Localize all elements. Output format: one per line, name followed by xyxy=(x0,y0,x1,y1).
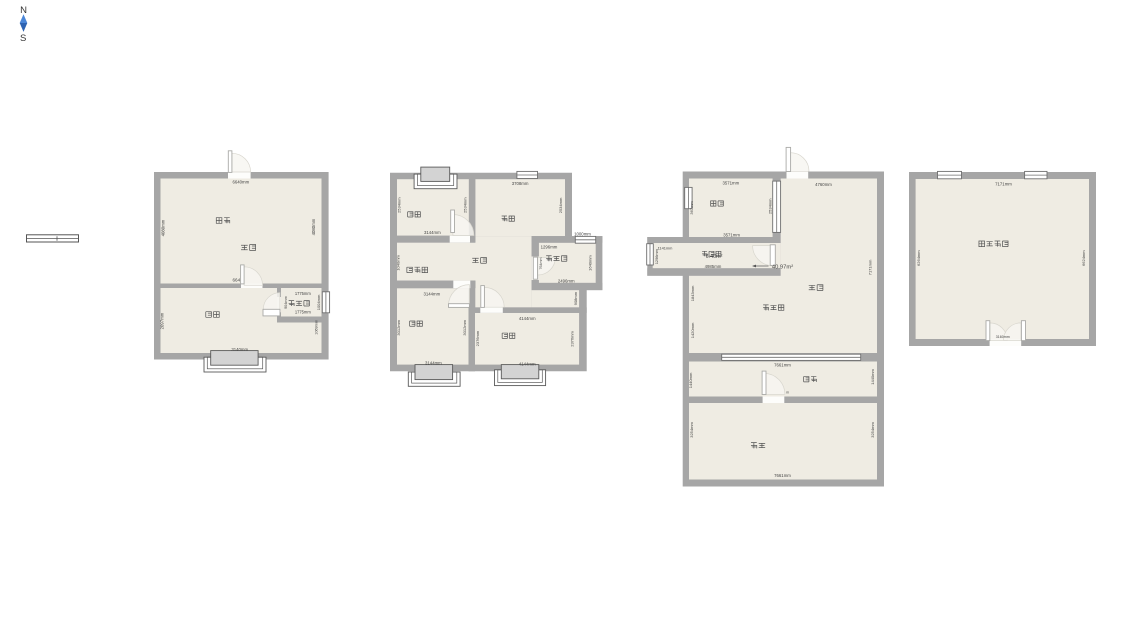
svg-text:3254mm: 3254mm xyxy=(689,422,694,438)
svg-text:2496mm: 2496mm xyxy=(558,278,575,283)
svg-text:1843mm: 1843mm xyxy=(690,285,695,301)
svg-text:3160mm: 3160mm xyxy=(996,335,1010,339)
svg-text:908mm: 908mm xyxy=(573,291,578,305)
svg-text:904mm: 904mm xyxy=(284,296,288,309)
svg-text:1296mm: 1296mm xyxy=(654,249,659,264)
svg-text:7171mm: 7171mm xyxy=(868,259,873,275)
svg-text:2376mm: 2376mm xyxy=(570,331,575,347)
svg-text:3254mm: 3254mm xyxy=(870,422,875,438)
svg-text:4760mm: 4760mm xyxy=(815,182,832,187)
svg-text:367mm: 367mm xyxy=(689,201,694,215)
svg-text:2534mm: 2534mm xyxy=(396,197,401,213)
svg-text:7661mm: 7661mm xyxy=(774,362,791,367)
svg-text:6624mm: 6624mm xyxy=(1081,250,1086,266)
svg-text:3140mm: 3140mm xyxy=(231,347,248,352)
svg-text:1040mm: 1040mm xyxy=(395,254,400,270)
svg-text:4080mm: 4080mm xyxy=(311,218,316,235)
svg-text:3144mm: 3144mm xyxy=(423,292,440,297)
svg-text:2534mm: 2534mm xyxy=(767,198,772,214)
svg-text:6640mm: 6640mm xyxy=(232,180,249,185)
svg-text:1420mm: 1420mm xyxy=(690,322,695,338)
svg-text:7171mm: 7171mm xyxy=(995,182,1012,187)
svg-text:1440mm: 1440mm xyxy=(870,369,875,385)
svg-text:4985mm: 4985mm xyxy=(705,264,722,269)
svg-text:3144mm: 3144mm xyxy=(425,361,442,366)
svg-text:664: 664 xyxy=(232,278,240,283)
svg-text:1296mm: 1296mm xyxy=(541,245,558,250)
svg-text:1640mm: 1640mm xyxy=(587,255,592,271)
svg-text:1141mm: 1141mm xyxy=(658,245,673,250)
svg-text:2097mm: 2097mm xyxy=(160,312,165,329)
svg-text:3012mm: 3012mm xyxy=(396,319,401,335)
svg-text:7661mm: 7661mm xyxy=(774,473,791,478)
svg-text:1775mm: 1775mm xyxy=(295,291,312,296)
svg-text:4144mm: 4144mm xyxy=(519,362,536,367)
svg-text:6264mm: 6264mm xyxy=(916,250,921,266)
svg-text:m: m xyxy=(786,391,789,395)
svg-text:S: S xyxy=(20,33,26,44)
svg-text:3708mm: 3708mm xyxy=(512,181,529,186)
svg-text:1440mm: 1440mm xyxy=(688,372,693,388)
svg-text:3144mm: 3144mm xyxy=(424,230,441,235)
svg-text:3571mm: 3571mm xyxy=(723,233,740,238)
svg-text:2534mm: 2534mm xyxy=(462,197,467,213)
svg-text:4080mm: 4080mm xyxy=(161,219,166,236)
svg-text:1004mm: 1004mm xyxy=(316,294,321,310)
svg-text:764mm: 764mm xyxy=(539,258,543,270)
svg-text:2376mm: 2376mm xyxy=(475,330,480,346)
svg-text:1000mm: 1000mm xyxy=(574,231,591,236)
svg-text:3571mm: 3571mm xyxy=(722,180,739,185)
svg-text:1775mm: 1775mm xyxy=(295,310,312,315)
svg-text:3012mm: 3012mm xyxy=(462,319,467,335)
svg-text:4144mm: 4144mm xyxy=(519,316,536,321)
svg-text:40.97m²: 40.97m² xyxy=(772,264,793,270)
svg-text:2534mm: 2534mm xyxy=(558,197,563,213)
svg-text:6.40m²: 6.40m² xyxy=(706,254,723,260)
svg-text:1069mm: 1069mm xyxy=(314,320,318,335)
